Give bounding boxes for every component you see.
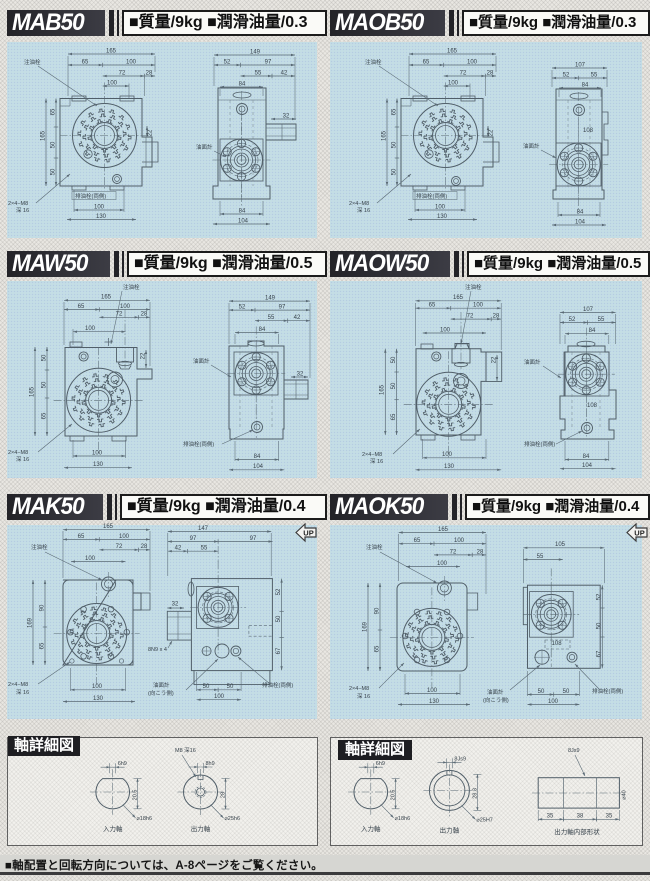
svg-text:72: 72: [450, 549, 457, 555]
svg-text:深 16: 深 16: [16, 688, 29, 696]
svg-text:100: 100: [119, 534, 130, 540]
svg-text:52: 52: [569, 317, 576, 323]
svg-text:90: 90: [39, 604, 45, 611]
svg-text:出力軸: 出力軸: [191, 824, 211, 833]
svg-text:100: 100: [437, 561, 448, 567]
svg-text:油面計: 油面計: [153, 681, 170, 689]
svg-text:67: 67: [597, 650, 603, 657]
svg-text:50: 50: [391, 382, 397, 389]
svg-text:油面計: 油面計: [193, 357, 210, 365]
svg-text:注油栓: 注油栓: [365, 58, 382, 66]
svg-text:65: 65: [414, 538, 421, 544]
svg-text:20.5: 20.5: [133, 790, 139, 801]
svg-text:35: 35: [547, 814, 554, 820]
svg-text:169: 169: [27, 617, 33, 628]
svg-text:65: 65: [429, 303, 436, 309]
svg-text:90: 90: [374, 607, 380, 614]
svg-text:8N9 x 4: 8N9 x 4: [148, 647, 167, 653]
svg-text:50: 50: [203, 684, 210, 690]
svg-text:注油栓: 注油栓: [465, 283, 482, 291]
svg-text:28: 28: [221, 792, 227, 798]
svg-text:50: 50: [276, 615, 282, 622]
svg-text:8Js9: 8Js9: [568, 748, 580, 754]
svg-text:52: 52: [597, 593, 603, 600]
svg-text:2×4−M8: 2×4−M8: [349, 686, 369, 692]
svg-text:100: 100: [473, 303, 484, 309]
svg-text:108: 108: [587, 403, 598, 409]
svg-text:50: 50: [391, 356, 397, 363]
svg-text:72: 72: [116, 312, 123, 318]
svg-text:149: 149: [250, 49, 261, 55]
svg-text:入力軸: 入力軸: [361, 824, 381, 833]
svg-text:油面計: 油面計: [487, 688, 504, 696]
svg-text:55: 55: [268, 315, 275, 321]
svg-text:50: 50: [50, 141, 56, 148]
svg-text:⌀18h6: ⌀18h6: [137, 816, 153, 822]
svg-text:100: 100: [467, 59, 478, 65]
svg-text:8h9: 8h9: [206, 761, 215, 767]
svg-text:28: 28: [141, 312, 148, 318]
svg-text:130: 130: [444, 464, 455, 470]
svg-text:72: 72: [467, 314, 474, 320]
svg-text:入力軸: 入力軸: [103, 824, 123, 833]
svg-text:UP: UP: [303, 529, 313, 538]
svg-text:165: 165: [380, 384, 386, 395]
svg-text:50: 50: [538, 689, 545, 695]
svg-text:100: 100: [440, 327, 451, 333]
svg-text:105: 105: [555, 542, 566, 548]
svg-text:2×4−M8: 2×4−M8: [349, 201, 369, 207]
svg-text:⌀18h6: ⌀18h6: [395, 816, 411, 822]
svg-text:165: 165: [453, 295, 464, 301]
svg-text:107: 107: [575, 62, 586, 68]
svg-text:84: 84: [582, 82, 589, 88]
svg-text:104: 104: [238, 218, 249, 224]
svg-text:130: 130: [93, 696, 104, 702]
svg-text:50: 50: [227, 684, 234, 690]
svg-text:28: 28: [493, 314, 500, 320]
svg-text:2×4−M8: 2×4−M8: [8, 201, 28, 207]
svg-text:38: 38: [577, 814, 584, 820]
svg-text:⌀40: ⌀40: [622, 790, 628, 799]
svg-text:42: 42: [294, 315, 301, 321]
svg-text:65: 65: [50, 108, 56, 115]
svg-text:147: 147: [198, 526, 209, 532]
svg-text:注油栓: 注油栓: [24, 58, 41, 66]
svg-text:100: 100: [435, 204, 446, 210]
svg-text:67: 67: [276, 647, 282, 654]
svg-text:169: 169: [362, 621, 368, 632]
svg-text:2×4−M8: 2×4−M8: [362, 452, 382, 458]
svg-text:32: 32: [283, 113, 290, 119]
svg-text:100: 100: [214, 694, 225, 700]
svg-text:165: 165: [40, 130, 46, 141]
svg-text:52: 52: [239, 305, 246, 311]
svg-text:20.5: 20.5: [391, 790, 397, 801]
svg-text:65: 65: [41, 412, 47, 419]
svg-text:84: 84: [259, 327, 266, 333]
svg-text:107: 107: [583, 307, 594, 313]
svg-text:65: 65: [39, 642, 45, 649]
svg-text:130: 130: [96, 214, 107, 220]
svg-text:100: 100: [548, 699, 559, 705]
svg-text:8Js9: 8Js9: [454, 756, 466, 762]
svg-text:2×4−M8: 2×4−M8: [8, 450, 28, 456]
svg-text:108: 108: [552, 641, 563, 647]
svg-text:22: 22: [489, 129, 495, 136]
svg-text:149: 149: [265, 296, 276, 302]
svg-text:165: 165: [101, 295, 112, 301]
svg-text:28: 28: [487, 70, 494, 76]
svg-text:6h9: 6h9: [118, 761, 127, 767]
svg-text:排油栓(両側): 排油栓(両側): [75, 192, 106, 200]
svg-text:100: 100: [92, 684, 103, 690]
svg-text:130: 130: [93, 462, 104, 468]
svg-text:97: 97: [190, 536, 197, 542]
svg-text:⌀25H7: ⌀25H7: [476, 817, 492, 823]
svg-text:165: 165: [381, 130, 387, 141]
svg-text:65: 65: [391, 413, 397, 420]
svg-text:注油栓: 注油栓: [123, 283, 140, 291]
svg-text:50: 50: [41, 381, 47, 388]
svg-text:(向こう側): (向こう側): [148, 689, 174, 697]
svg-text:50: 50: [41, 354, 47, 361]
svg-text:65: 65: [78, 534, 85, 540]
svg-text:84: 84: [254, 454, 261, 460]
svg-text:排油栓(両側): 排油栓(両側): [524, 440, 555, 448]
svg-text:UP: UP: [634, 529, 644, 538]
svg-text:深 16: 深 16: [357, 206, 370, 214]
svg-text:50: 50: [563, 689, 570, 695]
svg-text:104: 104: [582, 463, 593, 469]
svg-text:深 16: 深 16: [370, 457, 383, 465]
svg-text:(向こう側): (向こう側): [483, 696, 509, 704]
svg-text:100: 100: [92, 450, 103, 456]
svg-text:84: 84: [577, 209, 584, 215]
svg-text:55: 55: [255, 70, 262, 76]
svg-text:84: 84: [239, 81, 246, 87]
svg-text:50: 50: [50, 168, 56, 175]
svg-text:72: 72: [460, 70, 467, 76]
svg-text:72: 72: [116, 544, 123, 550]
svg-text:97: 97: [265, 59, 272, 65]
svg-text:100: 100: [454, 538, 465, 544]
svg-text:108: 108: [583, 128, 594, 134]
svg-text:油面計: 油面計: [524, 358, 541, 366]
svg-text:深 16: 深 16: [357, 692, 370, 700]
svg-text:100: 100: [427, 688, 438, 694]
svg-text:⌀25h6: ⌀25h6: [225, 816, 241, 822]
svg-text:65: 65: [82, 59, 89, 65]
svg-text:深 16: 深 16: [16, 455, 29, 463]
svg-text:6h9: 6h9: [376, 761, 385, 767]
svg-text:100: 100: [442, 452, 453, 458]
svg-text:100: 100: [448, 80, 459, 86]
svg-text:65: 65: [391, 108, 397, 115]
svg-text:55: 55: [591, 72, 598, 78]
svg-text:22: 22: [148, 129, 154, 136]
svg-text:排油栓(両側): 排油栓(両側): [592, 687, 623, 695]
svg-text:97: 97: [279, 305, 286, 311]
svg-text:104: 104: [253, 464, 264, 470]
svg-text:排油栓(両側): 排油栓(両側): [262, 681, 293, 689]
svg-text:22: 22: [140, 352, 146, 359]
svg-text:65: 65: [78, 304, 85, 310]
svg-text:55: 55: [537, 554, 544, 560]
svg-text:165: 165: [438, 527, 449, 533]
svg-text:165: 165: [29, 386, 35, 397]
svg-text:52: 52: [276, 588, 282, 595]
svg-text:84: 84: [589, 328, 596, 334]
svg-text:84: 84: [239, 208, 246, 214]
svg-text:排油栓(両側): 排油栓(両側): [416, 192, 447, 200]
svg-text:28.3: 28.3: [472, 788, 478, 799]
svg-text:深 16: 深 16: [16, 206, 29, 214]
svg-text:104: 104: [575, 219, 586, 225]
svg-text:97: 97: [250, 536, 257, 542]
svg-text:注油栓: 注油栓: [366, 543, 383, 551]
svg-text:130: 130: [429, 699, 440, 705]
svg-text:油面計: 油面計: [523, 142, 540, 150]
svg-text:165: 165: [106, 48, 117, 54]
svg-text:注油栓: 注油栓: [31, 543, 48, 551]
svg-text:出力軸内部形状: 出力軸内部形状: [554, 827, 600, 836]
svg-text:排油栓(両側): 排油栓(両側): [183, 440, 214, 448]
svg-text:100: 100: [107, 80, 118, 86]
svg-text:84: 84: [583, 454, 590, 460]
svg-text:65: 65: [423, 59, 430, 65]
svg-text:100: 100: [85, 326, 96, 332]
svg-text:M8 深16: M8 深16: [175, 746, 196, 754]
svg-text:65: 65: [374, 645, 380, 652]
svg-text:50: 50: [391, 141, 397, 148]
svg-text:2×4−M8: 2×4−M8: [8, 682, 28, 688]
svg-text:油面計: 油面計: [196, 143, 213, 151]
svg-text:32: 32: [172, 602, 179, 608]
svg-text:28: 28: [146, 70, 153, 76]
svg-text:52: 52: [224, 59, 231, 65]
svg-text:28: 28: [477, 549, 484, 555]
svg-text:35: 35: [606, 814, 613, 820]
svg-text:72: 72: [119, 70, 126, 76]
svg-text:55: 55: [201, 546, 208, 552]
svg-text:28: 28: [141, 544, 148, 550]
svg-text:165: 165: [103, 524, 114, 530]
svg-text:42: 42: [175, 546, 182, 552]
svg-text:130: 130: [437, 214, 448, 220]
svg-text:50: 50: [391, 168, 397, 175]
svg-text:100: 100: [120, 304, 131, 310]
svg-text:55: 55: [598, 317, 605, 323]
svg-text:22: 22: [491, 356, 497, 363]
svg-text:50: 50: [597, 622, 603, 629]
svg-text:52: 52: [563, 72, 570, 78]
svg-text:100: 100: [126, 59, 137, 65]
svg-text:32: 32: [297, 371, 304, 377]
svg-text:100: 100: [94, 204, 105, 210]
svg-text:出力軸: 出力軸: [440, 825, 460, 834]
svg-text:42: 42: [281, 70, 288, 76]
svg-text:165: 165: [447, 48, 458, 54]
svg-text:100: 100: [85, 556, 96, 562]
